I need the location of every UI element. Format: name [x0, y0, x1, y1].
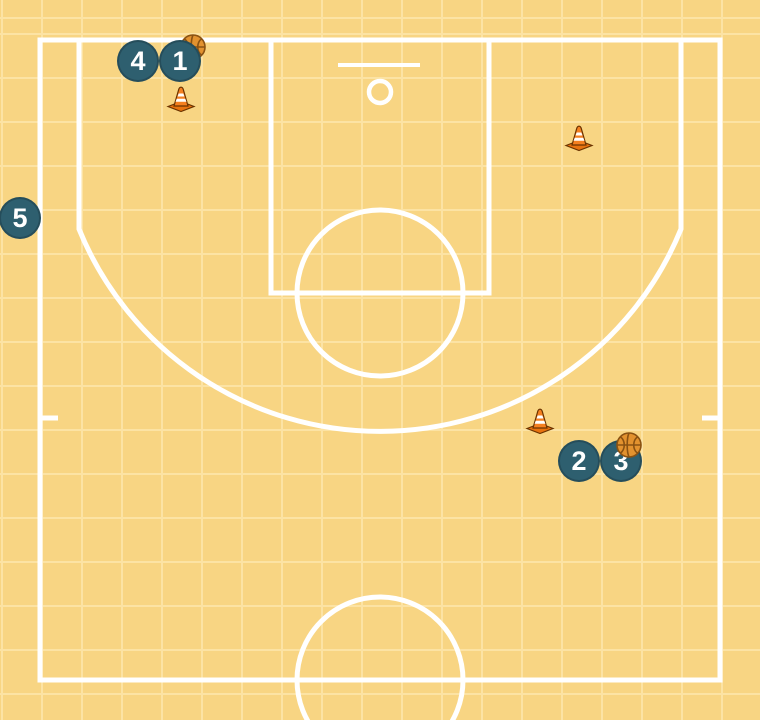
player-number: 4 [130, 48, 145, 75]
training-cone-icon[interactable] [166, 85, 196, 113]
player-marker[interactable]: 4 [117, 40, 159, 82]
cone-glyph [564, 124, 594, 152]
player-number: 5 [12, 205, 27, 232]
basketball-icon[interactable] [616, 432, 642, 458]
basketball-glyph [616, 432, 642, 458]
player-marker[interactable]: 2 [558, 440, 600, 482]
markers-layer: 4 1 5 2 3 [0, 0, 760, 720]
cone-glyph [525, 407, 555, 435]
cone-glyph [166, 85, 196, 113]
drill-court-canvas: 4 1 5 2 3 [0, 0, 760, 720]
training-cone-icon[interactable] [525, 407, 555, 435]
player-marker[interactable]: 1 [159, 40, 201, 82]
player-number: 1 [172, 48, 187, 75]
player-marker[interactable]: 5 [0, 197, 41, 239]
player-number: 2 [571, 448, 586, 475]
training-cone-icon[interactable] [564, 124, 594, 152]
